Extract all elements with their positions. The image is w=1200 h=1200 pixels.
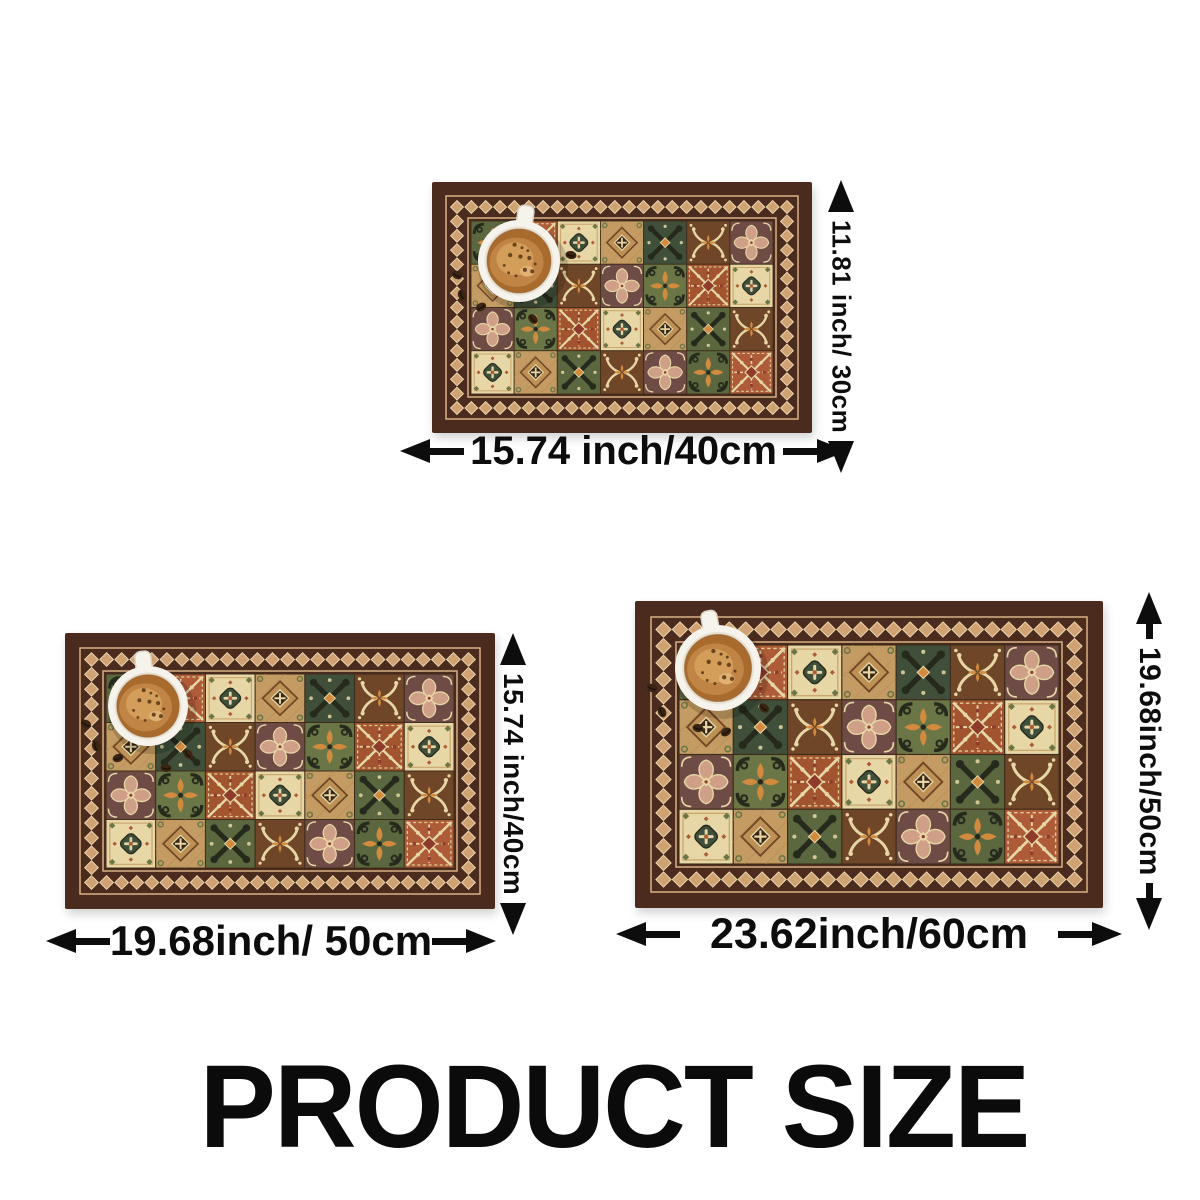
mat-small-height-label: 11.81 inch/ 30cm xyxy=(826,212,857,441)
arrow-left-icon xyxy=(616,922,646,946)
dimension-line xyxy=(646,931,680,938)
arrow-up-icon xyxy=(500,633,526,665)
arrow-up-icon xyxy=(828,180,854,212)
mat-small-height-dimension: 11.81 inch/ 30cm xyxy=(816,180,866,433)
dimension-line xyxy=(1146,624,1153,639)
mat-large-width-dimension: 23.62inch/60cm xyxy=(616,910,1122,958)
arrow-up-icon xyxy=(1136,592,1162,624)
mat-large-width-label: 23.62inch/60cm xyxy=(710,910,1028,959)
mat-medium-height-dimension: 15.74 inch/40cm xyxy=(488,633,538,935)
mat-small-width-label: 15.74 inch/40cm xyxy=(470,429,777,474)
dimension-line xyxy=(76,938,110,945)
arrow-right-icon xyxy=(1092,922,1122,946)
arrow-down-icon xyxy=(500,903,526,935)
mat-medium-preview xyxy=(65,633,495,909)
mat-pattern xyxy=(65,633,495,909)
dimension-line xyxy=(783,448,817,455)
arrow-left-icon xyxy=(400,439,430,463)
arrow-down-icon xyxy=(1136,898,1162,930)
mat-small-width-dimension: 15.74 inch/40cm xyxy=(400,430,847,472)
mat-small-preview xyxy=(432,182,812,433)
dimension-line xyxy=(1058,931,1092,938)
arrow-right-icon xyxy=(466,929,496,953)
mat-large-preview xyxy=(635,601,1103,908)
mat-pattern xyxy=(432,182,812,433)
arrow-left-icon xyxy=(46,929,76,953)
mat-medium-height-label: 15.74 inch/40cm xyxy=(497,665,529,903)
mat-medium-width-label: 19.68inch/ 50cm xyxy=(110,917,432,965)
dimension-line xyxy=(432,938,466,945)
product-size-infographic: 11.81 inch/ 30cm 15.74 inch/40cm xyxy=(0,0,1200,1200)
mat-medium-width-dimension: 19.68inch/ 50cm xyxy=(46,918,496,964)
page-title: PRODUCT SIZE xyxy=(18,1048,1182,1166)
mat-large-height-label: 19.68inch/50cm xyxy=(1132,639,1166,884)
mat-pattern xyxy=(635,601,1103,908)
arrow-right-icon xyxy=(817,439,847,463)
dimension-line xyxy=(1146,883,1153,898)
mat-large-height-dimension: 19.68inch/50cm xyxy=(1124,592,1174,930)
dimension-line xyxy=(430,448,464,455)
